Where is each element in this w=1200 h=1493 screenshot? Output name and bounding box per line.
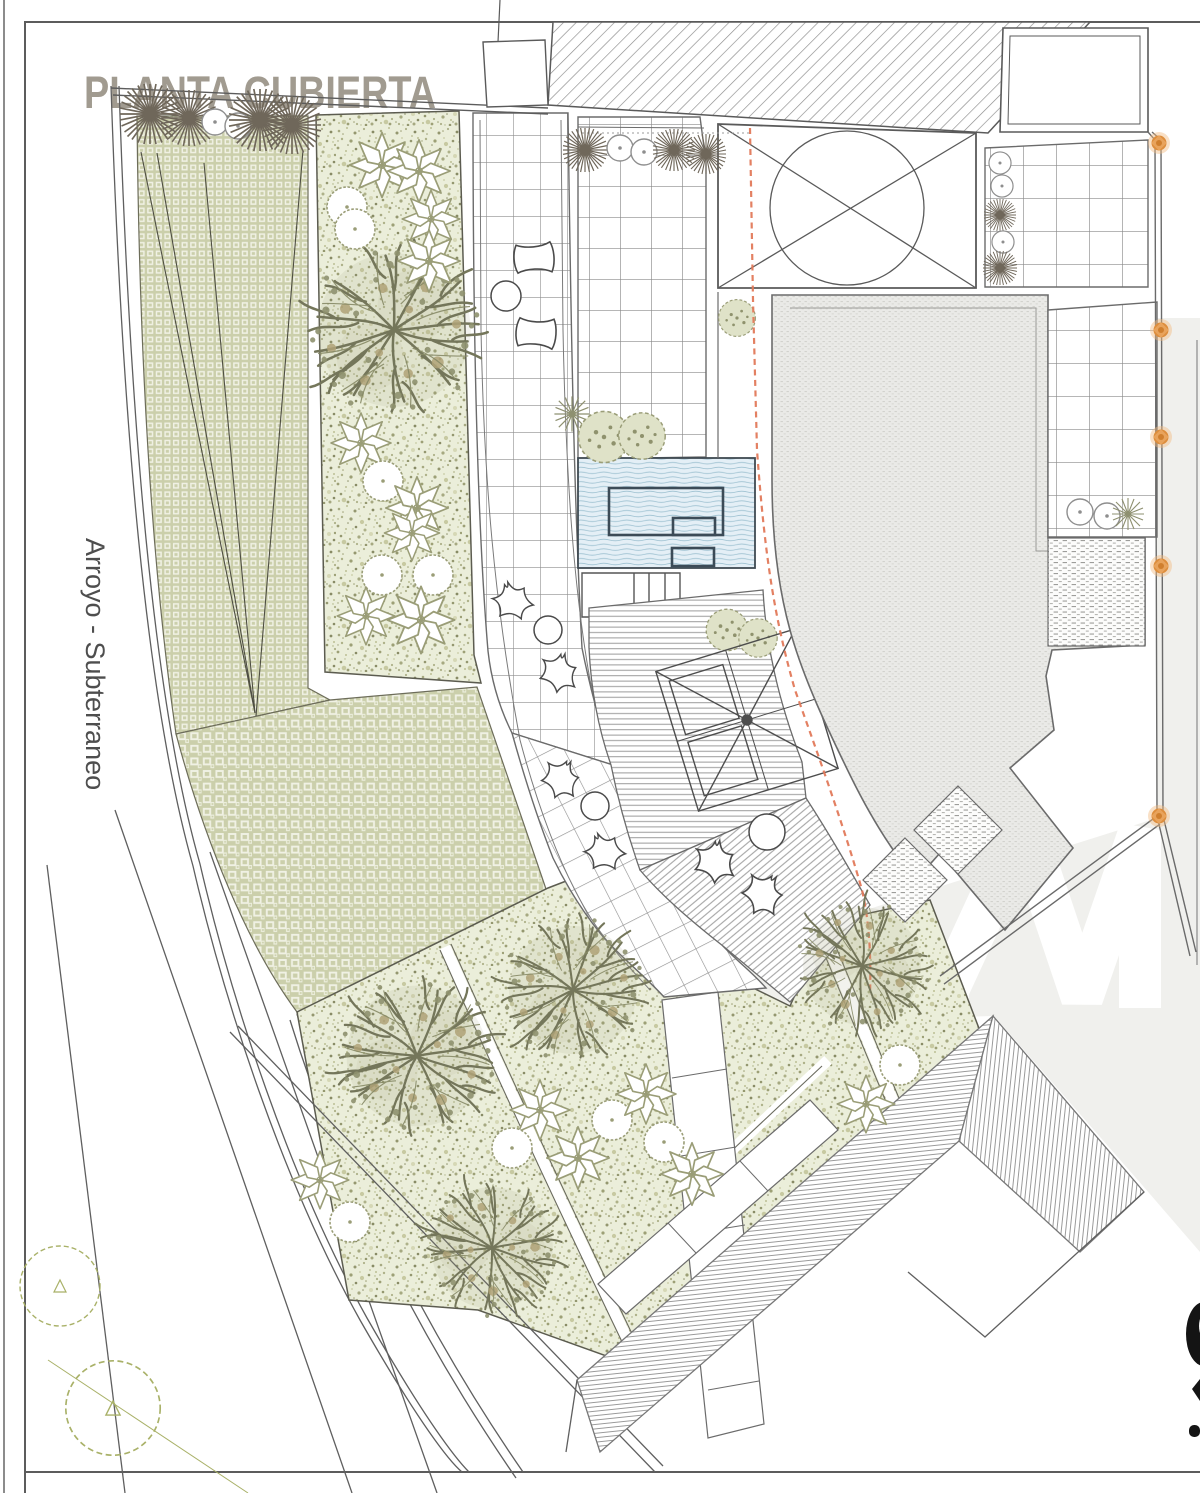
- svg-text:Arroyo - Subterraneo: Arroyo - Subterraneo: [80, 538, 110, 790]
